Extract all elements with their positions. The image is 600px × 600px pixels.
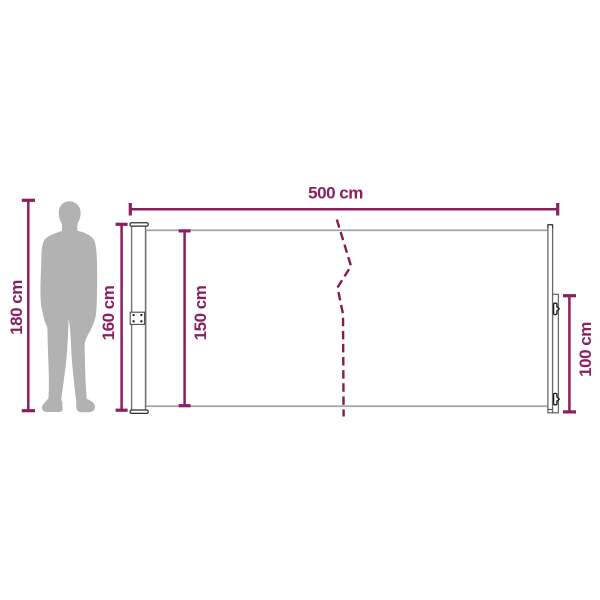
svg-text:160 cm: 160 cm [99, 285, 118, 340]
svg-text:180 cm: 180 cm [7, 280, 26, 335]
svg-text:500 cm: 500 cm [308, 184, 363, 203]
svg-text:150 cm: 150 cm [191, 285, 210, 340]
svg-text:100 cm: 100 cm [576, 322, 595, 377]
